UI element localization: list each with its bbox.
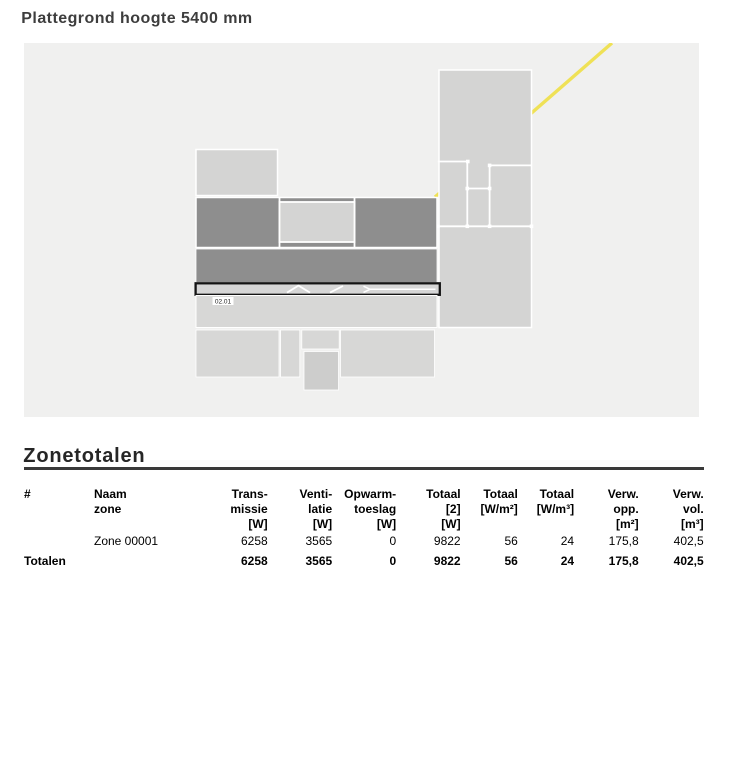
svg-text:02.01: 02.01: [215, 299, 232, 306]
